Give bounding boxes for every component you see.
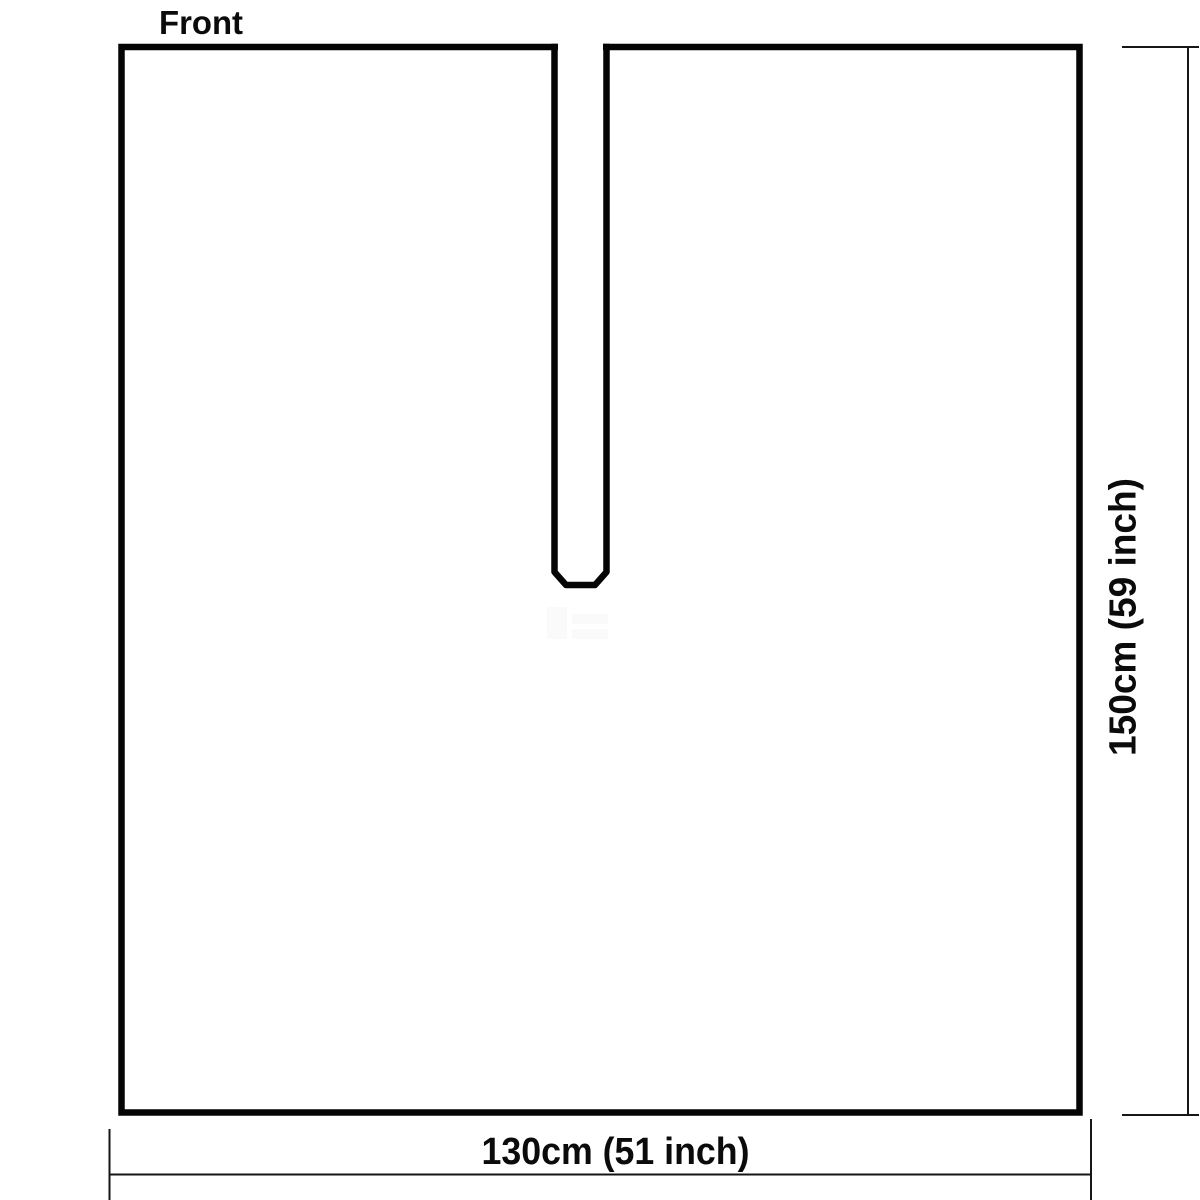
svg-text:150cm (59 inch): 150cm (59 inch) <box>1103 478 1145 756</box>
svg-text:130cm (51 inch): 130cm (51 inch) <box>482 1131 750 1173</box>
svg-text:Front: Front <box>159 4 243 41</box>
